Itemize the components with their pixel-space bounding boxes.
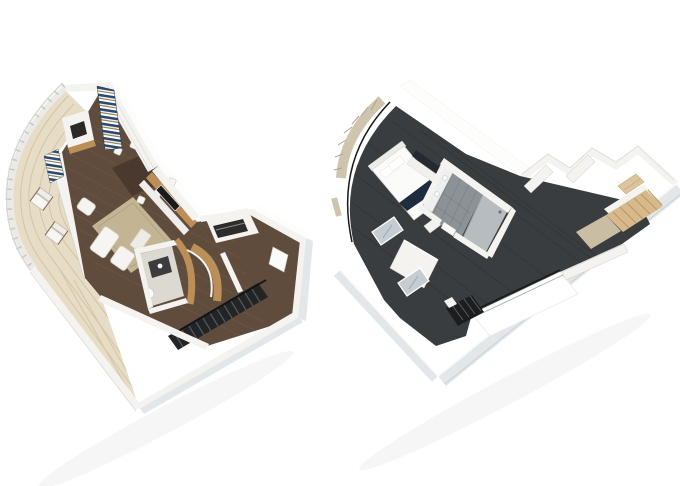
floorplan-canvas xyxy=(0,0,680,486)
sink xyxy=(435,192,440,197)
shower-head xyxy=(499,211,502,214)
shadow-lower-plan xyxy=(31,340,299,486)
sink xyxy=(443,176,448,181)
floorplan-upper-level xyxy=(334,80,680,386)
floorplan-illustration xyxy=(0,0,680,486)
sink xyxy=(158,264,163,269)
curtain-stub xyxy=(334,198,339,216)
